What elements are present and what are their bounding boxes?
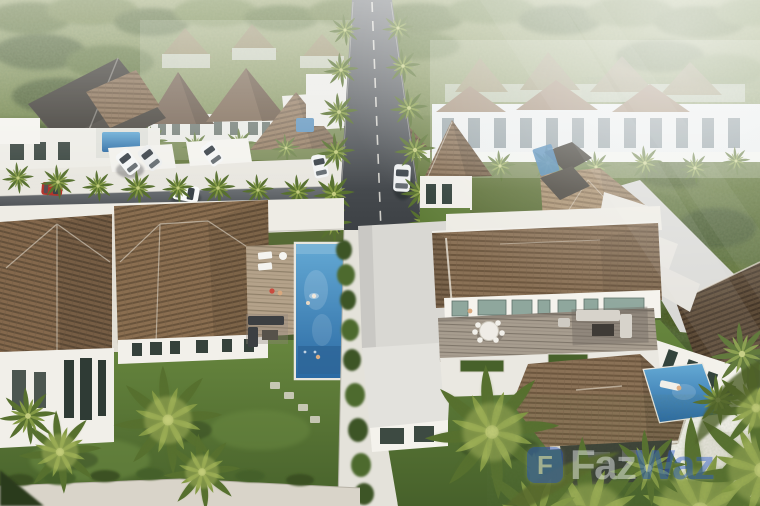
person-poolside bbox=[677, 386, 682, 391]
person bbox=[278, 291, 283, 296]
person-red bbox=[269, 288, 274, 293]
hip-roof-a bbox=[0, 214, 118, 358]
left-pool-deck bbox=[246, 244, 300, 347]
aerial-villa-render: F FazWaz bbox=[0, 0, 760, 506]
render-canvas bbox=[0, 0, 760, 506]
